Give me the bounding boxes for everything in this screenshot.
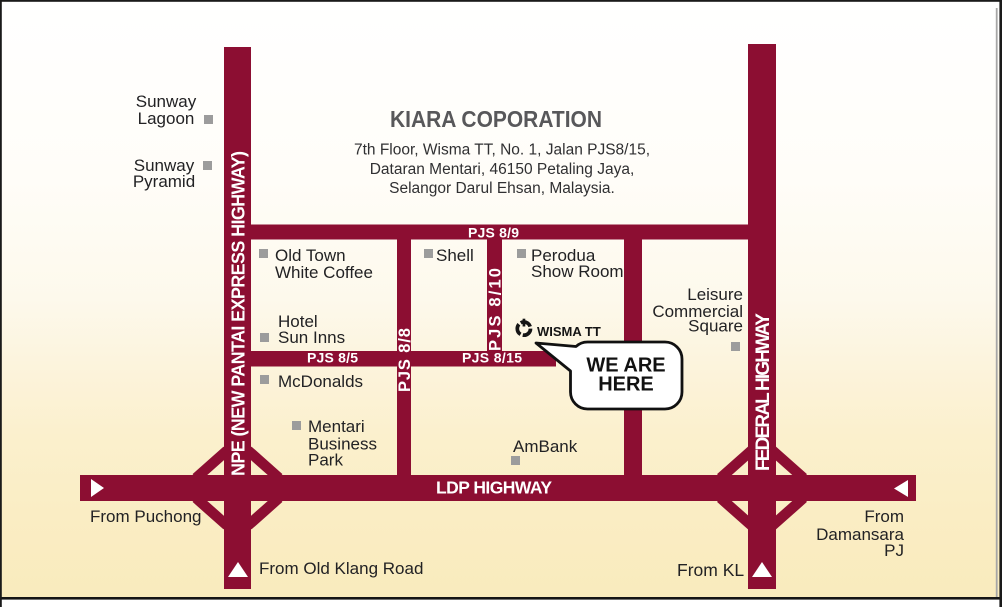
svg-text:Show Room: Show Room bbox=[531, 262, 624, 281]
svg-text:Mentari: Mentari bbox=[308, 417, 365, 436]
svg-text:Square: Square bbox=[688, 317, 743, 336]
svg-text:Pyramid: Pyramid bbox=[133, 172, 195, 191]
svg-text:From: From bbox=[864, 507, 904, 526]
svg-text:Lagoon: Lagoon bbox=[138, 109, 195, 128]
svg-text:PJS 8/10: PJS 8/10 bbox=[487, 268, 505, 351]
svg-text:AmBank: AmBank bbox=[513, 437, 578, 456]
svg-text:McDonalds: McDonalds bbox=[278, 372, 363, 391]
svg-text:From KL: From KL bbox=[677, 560, 744, 580]
svg-text:From Old Klang Road: From Old Klang Road bbox=[259, 559, 423, 578]
svg-text:White Coffee: White Coffee bbox=[275, 263, 373, 282]
svg-text:PJS 8/15: PJS 8/15 bbox=[462, 350, 522, 366]
svg-text:7th Floor, Wisma TT, No. 1, Ja: 7th Floor, Wisma TT, No. 1, Jalan PJS8/1… bbox=[354, 142, 650, 159]
svg-text:KIARA COPORATION: KIARA COPORATION bbox=[390, 106, 602, 132]
svg-text:HERE: HERE bbox=[598, 374, 654, 396]
svg-text:LDP HIGHWAY: LDP HIGHWAY bbox=[436, 478, 552, 498]
svg-text:PJS 8/5: PJS 8/5 bbox=[307, 350, 358, 366]
svg-text:Dataran Mentari, 46150 Petalin: Dataran Mentari, 46150 Petaling Jaya, bbox=[370, 161, 635, 178]
svg-text:NPE (NEW PANTAI EXPRESS HIGHWA: NPE (NEW PANTAI EXPRESS HIGHWAY) bbox=[229, 151, 249, 476]
svg-text:Selangor Darul Ehsan, Malaysia: Selangor Darul Ehsan, Malaysia. bbox=[389, 180, 615, 197]
svg-text:PJ: PJ bbox=[884, 541, 904, 560]
svg-text:Sun Inns: Sun Inns bbox=[278, 328, 345, 347]
svg-text:WISMA TT: WISMA TT bbox=[537, 324, 601, 339]
svg-text:PJS 8/9: PJS 8/9 bbox=[468, 225, 519, 241]
svg-text:PJS 8/8: PJS 8/8 bbox=[396, 328, 414, 392]
svg-text:Park: Park bbox=[308, 451, 343, 470]
svg-text:Shell: Shell bbox=[436, 246, 474, 265]
svg-text:FEDERAL HIGHWAY: FEDERAL HIGHWAY bbox=[753, 313, 774, 471]
svg-text:From Puchong: From Puchong bbox=[90, 507, 202, 526]
